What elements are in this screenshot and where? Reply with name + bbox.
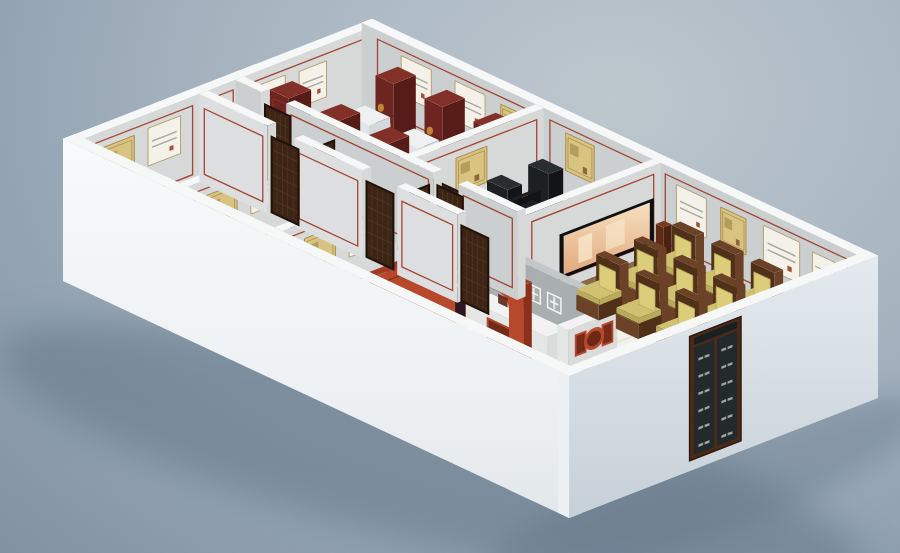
- lattice-door: [461, 226, 488, 314]
- clinic-3d-floorplan: 国医馆: [0, 0, 900, 553]
- scene-background: 国医馆: [0, 0, 900, 553]
- render-layers: 国医馆: [0, 19, 900, 553]
- lattice-door: [272, 137, 299, 225]
- entrance-lattice-door: [690, 317, 741, 461]
- lattice-door: [367, 181, 394, 269]
